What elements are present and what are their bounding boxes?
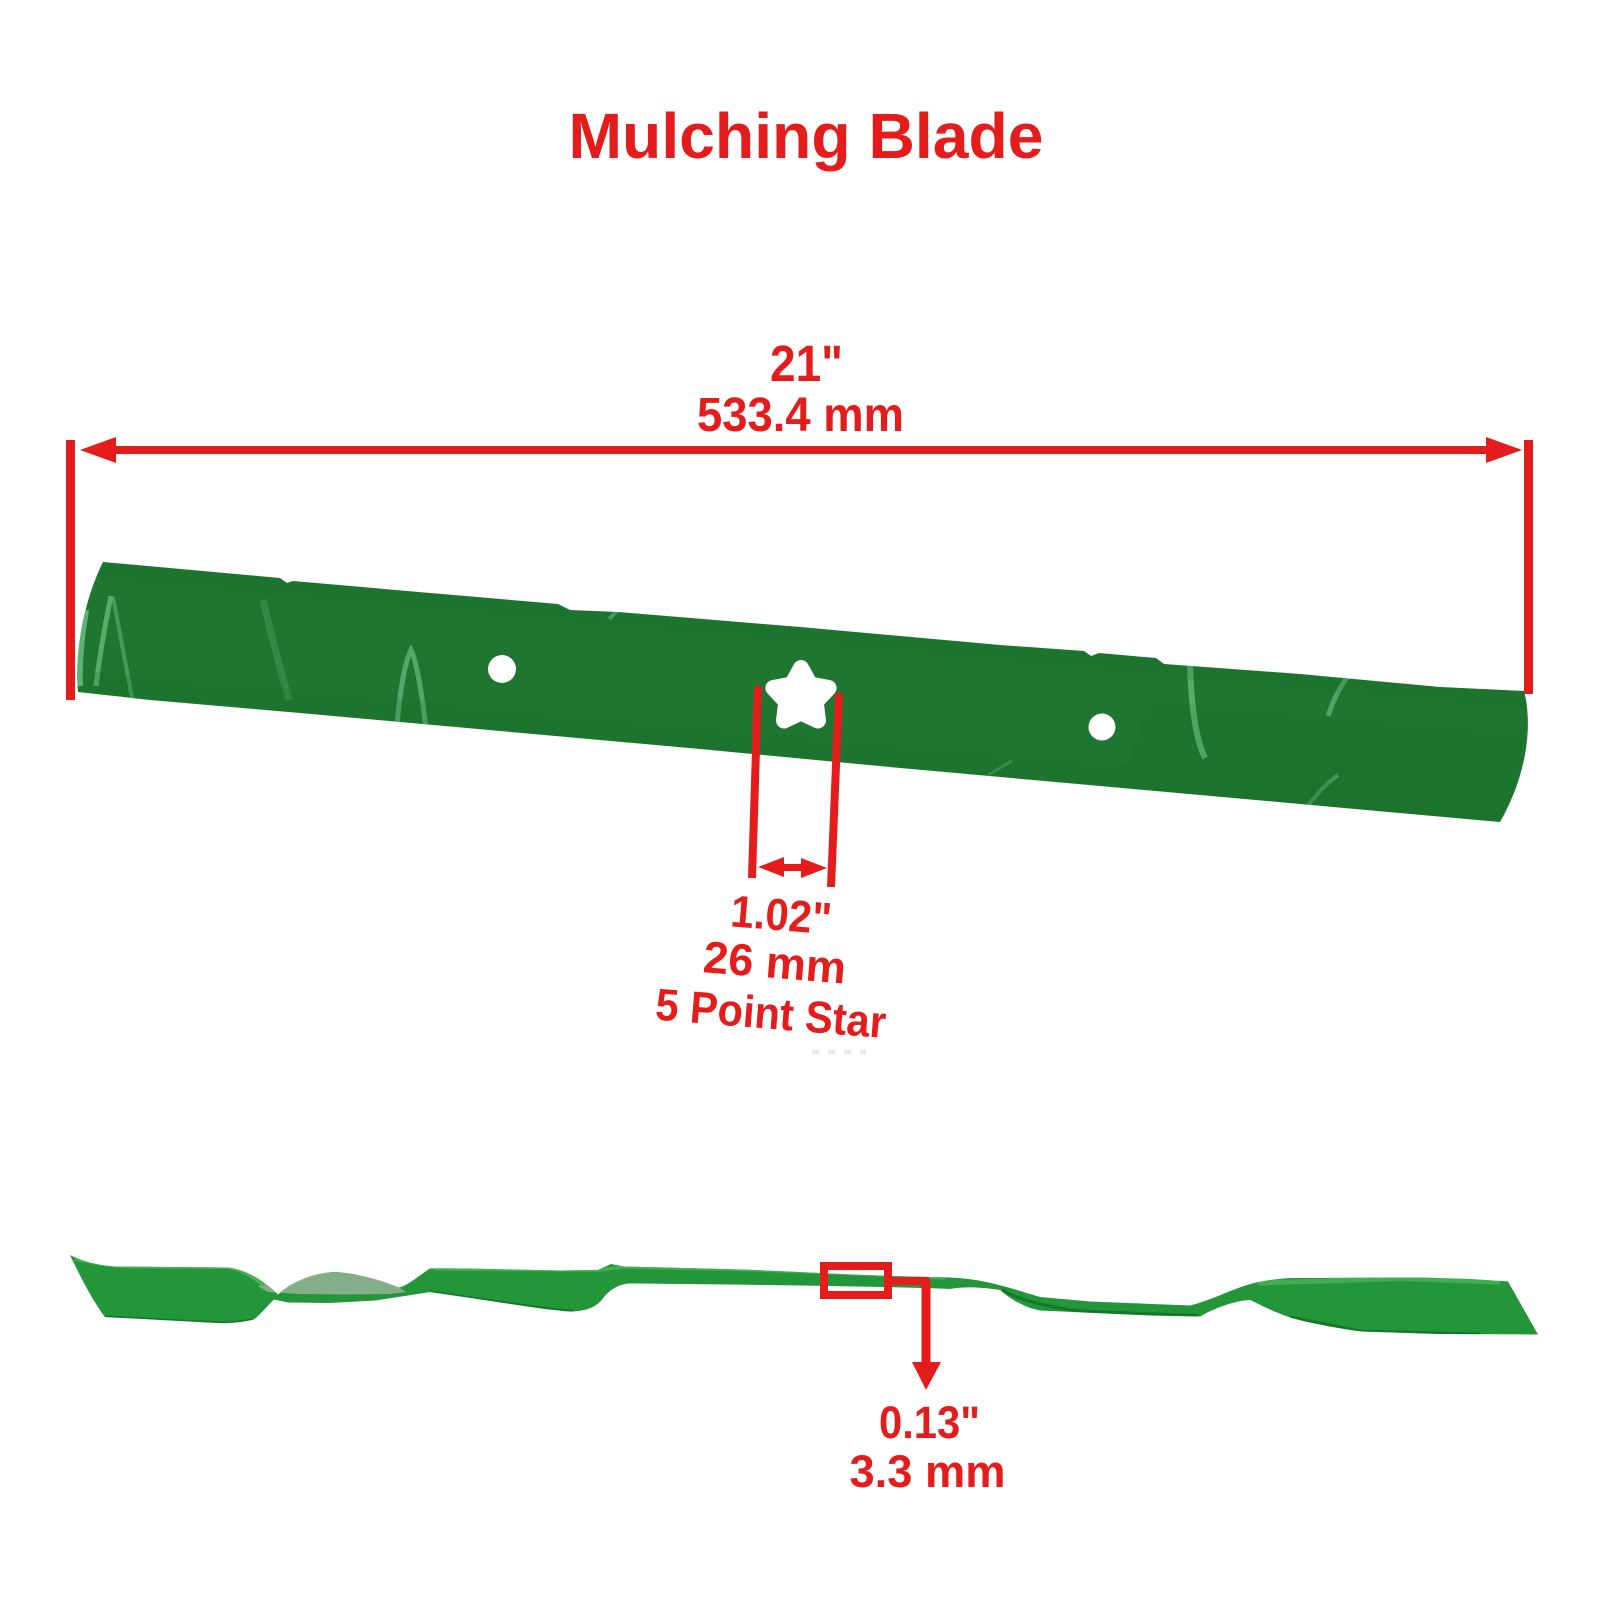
svg-text:533.4 mm: 533.4 mm	[697, 389, 904, 442]
svg-text:Mulching Blade: Mulching Blade	[569, 100, 1044, 172]
svg-text:21": 21"	[770, 335, 843, 392]
svg-text:3.3 mm: 3.3 mm	[850, 1446, 1006, 1497]
svg-text:0.13": 0.13"	[879, 1397, 980, 1448]
